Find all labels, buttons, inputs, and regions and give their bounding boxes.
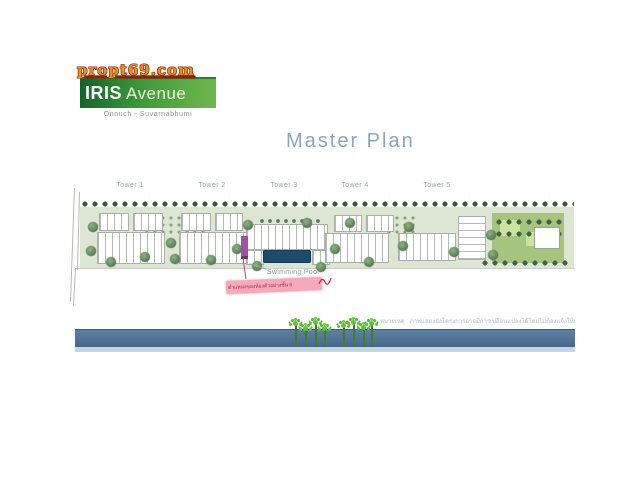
disclaimer-text: หมายเหตุ : ภาพแสดงผังโครงการอาจมีการเปลี… [380,316,575,326]
palm-trunk [353,323,355,346]
tree-icon [86,246,96,256]
tree-icon [302,218,312,228]
tower-1-upper-block [99,213,129,231]
palm-tree-icon [361,325,366,330]
palm-tree-icon [313,320,318,325]
watermark-text: propt69.com [77,61,195,79]
palm-tree-icon [369,321,374,326]
page-title: Master Plan [286,130,415,153]
tree-icon [488,250,498,260]
tree-row-top [80,197,574,211]
palm-trunk [295,324,297,346]
tree-icon [449,247,459,257]
tree-icon [206,255,216,265]
palm-tree-icon [341,323,346,328]
tower-4-label: Tower 4 [335,182,375,189]
palm-tree-icon [303,326,308,331]
palm-trunk [305,329,307,346]
tree-icon [106,257,116,267]
swimming-pool [263,250,311,263]
tree-icon [330,244,340,254]
tower-3-building [246,224,328,250]
tower-2-upper-block [181,213,211,231]
divider-band-strip [75,347,575,352]
road-edge-line-3 [73,268,76,306]
highlight-annotation: ตำแหน่งของห้องตัวอย่างชั้น 6 [226,277,322,294]
tree-icon [140,252,150,262]
pool-label: Swimming Pool [267,269,319,276]
tower-3-label: Tower 3 [264,182,304,189]
brochure-page: propt69.com IRIS Avenue Onnuch - Suvarna… [0,0,640,480]
palm-tree-icon [293,321,298,326]
logo-subtitle: Onnuch - Suvarnabhumi [80,111,216,118]
palm-trunk [371,324,373,346]
tree-icon [364,257,374,267]
tower-1-label: Tower 1 [110,182,150,189]
show-unit-marker [241,236,248,259]
tree-icon [398,241,408,251]
annotation-text: ตำแหน่งของห้องตัวอย่างชั้น 6 [226,281,293,292]
tower-4-upper-block-2 [366,215,394,232]
palm-trunk [343,326,345,346]
palm-tree-icon [351,320,356,325]
tree-icon [243,220,253,230]
project-logo: IRIS Avenue [80,77,216,108]
palm-trunk [315,323,317,346]
tower-5-vertical-block [458,216,486,260]
tree-icon [486,230,496,240]
tree-icon [345,218,355,228]
palm-tree-icon [322,326,327,331]
tower-2-label: Tower 2 [192,182,232,189]
red-squiggle-mark [318,274,332,288]
tower-1-upper-block-2 [133,213,163,231]
tree-icon [170,254,180,264]
logo-suffix-text: Avenue [126,84,186,104]
tree-icon [166,238,176,248]
clubhouse-building [534,227,560,249]
tree-icon [88,222,98,232]
palm-trunk [363,328,365,346]
logo-brand-text: IRIS [85,83,122,104]
tower-5-label: Tower 5 [417,182,457,189]
tower-2-upper-block-2 [215,213,243,231]
palm-trunk [324,329,326,346]
tree-icon [404,222,414,232]
